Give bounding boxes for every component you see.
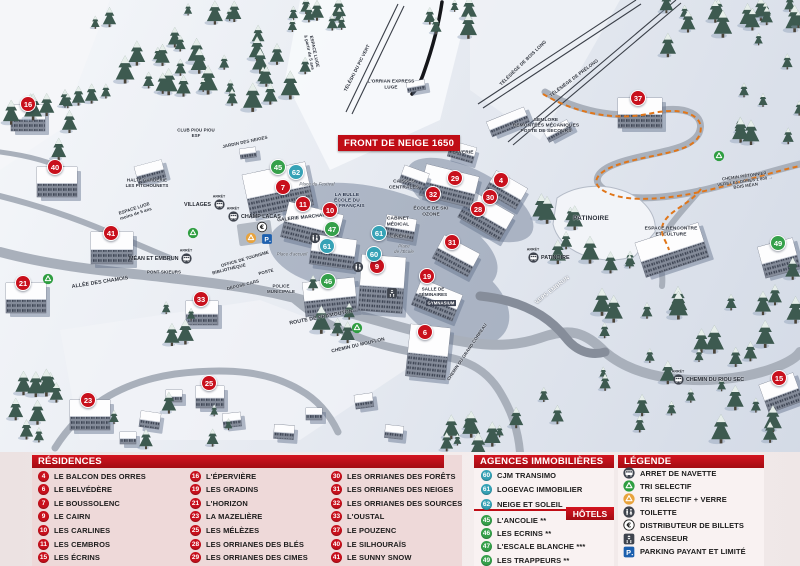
legend-item-label: NEIGE ET SOLEIL <box>497 500 563 509</box>
map-overlay: FRONT DE NEIGE 1650 16404121332325711109… <box>0 0 800 455</box>
recycle-green-icon <box>43 274 54 285</box>
legend-item: ARRET DE NAVETTE <box>623 467 716 479</box>
legend-item-label: L'ÉPERVIÈRE <box>206 472 256 481</box>
legend-item: 28LES ORRIANES DES BLÉS <box>190 538 304 550</box>
legend-item: 46LES ECRINS ** <box>481 527 551 539</box>
recycle-green-icon <box>623 480 635 492</box>
map-marker-4: 4 <box>493 172 509 188</box>
legend-item-label: LE BOUSSOLENC <box>54 499 120 508</box>
legend-item: 41LE SUNNY SNOW <box>331 552 412 564</box>
map-label: ESPACE RENCONTRE ET CULTURE <box>645 225 698 236</box>
legend-item-label: L'ANCOLIE ** <box>497 516 546 525</box>
legend-item: 11LES CEMBROS <box>38 538 110 550</box>
legend-item: 32LES ORRIANES DES SOURCES <box>331 497 462 509</box>
map-marker-45: 45 <box>270 159 286 175</box>
legend-item-label: LE BELVÉDÈRE <box>54 485 112 494</box>
map-label: PATINOIRE <box>573 214 609 222</box>
legend-item-label: LES ORRIANES DES CIMES <box>206 553 308 562</box>
shuttle-bus-icon <box>214 199 225 210</box>
agences-header: AGENCES IMMOBILIÈRES <box>474 455 614 468</box>
svg-text:P: P <box>626 548 631 557</box>
map-label: TÉLÉSIÈGE DE PRÉLONG <box>549 58 600 98</box>
toilets-icon <box>353 262 364 273</box>
legend-item-marker: 46 <box>481 528 492 539</box>
map-label: CHEMIN PIÉTONNIER VERS LES ORRES 1 800 →… <box>716 170 774 192</box>
map-label: CHEMIN DU GRAND CORREAU <box>446 322 488 381</box>
map-label: POLICE MUNICIPALE <box>267 284 295 294</box>
legend-item: 25LES MÉLÈZES <box>190 524 259 536</box>
map-label: Place de l'École <box>394 244 414 254</box>
legend-item-marker: 15 <box>38 552 49 563</box>
legend-item-label: LE CAIRN <box>54 512 90 521</box>
shuttle-bus-icon <box>528 252 539 263</box>
legend-item-label: LE BALCON DES ORRES <box>54 472 146 481</box>
map-marker-29: 29 <box>447 170 463 186</box>
elevator-icon <box>387 288 398 299</box>
legend-item: 33L'OUSTAL <box>331 511 384 523</box>
legend-item: TRI SELECTIF + VERRE <box>623 493 727 505</box>
legend-item-marker: 23 <box>190 511 201 522</box>
legend-item: 16L'ÉPERVIÈRE <box>190 470 256 482</box>
legend-item-marker: 31 <box>331 484 342 495</box>
map-marker-6: 6 <box>417 324 433 340</box>
legend-strip: RÉSIDENCES 4LE BALCON DES ORRES6LE BELVÉ… <box>0 452 800 566</box>
atm-euro-icon: € <box>623 519 635 531</box>
legende-panel: LÉGENDE ARRET DE NAVETTETRI SELECTIFTRI … <box>618 455 764 566</box>
legend-item-label: L'OUSTAL <box>347 512 384 521</box>
bus-stop-label: CHAMP LACAS <box>241 213 281 219</box>
legend-item-marker: 29 <box>190 552 201 563</box>
map-label: ROUTE DE PRAMOUTON <box>289 308 353 326</box>
legend-item: 60CJM TRANSIMO <box>481 469 556 481</box>
legend-item: 15LES ÉCRINS <box>38 552 100 564</box>
legend-item-label: LES ORRIANES DES NEIGES <box>347 485 454 494</box>
legend-item-label: TRI SELECTIF + VERRE <box>640 495 727 504</box>
legend-item: PPARKING PAYANT ET LIMITÉ <box>623 546 746 558</box>
map-marker-23: 23 <box>80 392 96 408</box>
legend-item-marker: 9 <box>38 511 49 522</box>
agences-panel: AGENCES IMMOBILIÈRES HÔTELS 60CJM TRANSI… <box>474 455 614 566</box>
legend-item-marker: 49 <box>481 555 492 566</box>
legend-item: TRI SELECTIF <box>623 480 692 492</box>
legend-item-marker: 4 <box>38 471 49 482</box>
legend-item-label: LES TRAPPEURS ** <box>497 556 569 565</box>
legend-item: 62NEIGE ET SOLEIL <box>481 498 563 510</box>
legend-item-label: LE SUNNY SNOW <box>347 553 412 562</box>
map-label: TÉLÉSIÈGE DE BOIS LONG <box>499 39 548 87</box>
legend-item: 45L'ANCOLIE ** <box>481 514 546 526</box>
map-marker-61: 61 <box>371 225 387 241</box>
legend-item-label: LES ORRIANES DES FORÊTS <box>347 472 456 481</box>
legend-item-label: TRI SELECTIF <box>640 482 692 491</box>
map-marker-33: 33 <box>193 291 209 307</box>
elevator-icon <box>623 533 635 545</box>
map-label: CABINET MÉDICAL <box>387 215 410 226</box>
map-label: L'ORRIAN EXPRESS LUGE <box>368 79 415 90</box>
map-label: Place du Festival <box>299 181 334 186</box>
legend-item-label: DISTRIBUTEUR DE BILLETS <box>640 521 744 530</box>
legend-item: 49LES TRAPPEURS ** <box>481 554 569 566</box>
legend-item-label: LES ORRIANES DES SOURCES <box>347 499 462 508</box>
map-marker-60: 60 <box>366 246 382 262</box>
map-marker-47: 47 <box>324 221 340 237</box>
legend-item-label: L'ESCALE BLANCHE *** <box>497 542 585 551</box>
map-marker-41: 41 <box>103 225 119 241</box>
map-marker-21: 21 <box>15 275 31 291</box>
map-label: CLUB PIOU PIOU ESF <box>177 128 215 138</box>
bus-stop-label: CHEMIN DU RIOU SEC <box>686 376 744 382</box>
map-marker-49: 49 <box>770 235 786 251</box>
map-label: ESPACE LUGE moins de 5 ans <box>118 201 153 221</box>
toilets-icon <box>623 506 635 518</box>
legend-item: 10LES CARLINES <box>38 524 110 536</box>
map-marker-32: 32 <box>425 186 441 202</box>
residences-header: RÉSIDENCES <box>32 455 444 468</box>
legend-item-label: CJM TRANSIMO <box>497 471 556 480</box>
recycle-yellow-icon <box>246 233 257 244</box>
map-marker-37: 37 <box>630 90 646 106</box>
legend-item-marker: 10 <box>38 525 49 536</box>
legend-item-label: LE POUZENC <box>347 526 396 535</box>
map-marker-62: 62 <box>288 164 304 180</box>
hotels-header: HÔTELS <box>566 507 614 520</box>
shuttle-bus-icon <box>228 211 239 222</box>
legend-item: €DISTRIBUTEUR DE BILLETS <box>623 519 744 531</box>
legend-item: 19LES GRADINS <box>190 484 258 496</box>
legend-item-label: LES ORRIANES DES BLÉS <box>206 540 304 549</box>
resort-map-page: FRONT DE NEIGE 1650 16404121332325711109… <box>0 0 800 566</box>
legend-item-marker: 60 <box>481 470 492 481</box>
map-label: ESPACE LUGE à partir de 5 ans <box>303 34 321 71</box>
legend-item: 30LES ORRIANES DES FORÊTS <box>331 470 456 482</box>
legend-item-marker: 19 <box>190 484 201 495</box>
map-marker-40: 40 <box>47 159 63 175</box>
recycle-green-icon <box>188 228 199 239</box>
svg-text:€: € <box>626 522 632 530</box>
svg-text:€: € <box>259 224 264 231</box>
legend-item-marker: 16 <box>190 471 201 482</box>
map-marker-7: 7 <box>275 179 291 195</box>
map-label: CAISSES CENTRALES <box>389 178 419 189</box>
map-label: PONT SKIEURS <box>147 269 181 274</box>
legend-item-marker: 7 <box>38 498 49 509</box>
map-label: CHEMIN DU MOUFLON <box>331 336 385 354</box>
legend-item-marker: 30 <box>331 471 342 482</box>
legend-item-marker: 62 <box>481 499 492 510</box>
bus-stop-label: MÉAN ET EMBRUN <box>129 255 179 261</box>
legend-item: 6LE BELVÉDÈRE <box>38 484 112 496</box>
map-marker-15: 15 <box>771 370 787 386</box>
legend-item: 31LES ORRIANES DES NEIGES <box>331 484 454 496</box>
map-label: ÉCOLE DE SKI OZONE <box>413 205 448 216</box>
map-marker-11: 11 <box>295 196 311 212</box>
legend-item-marker: 21 <box>190 498 201 509</box>
legend-item-label: LES CARLINES <box>54 526 110 535</box>
bus-stop-label: VILLAGES <box>184 201 211 207</box>
legend-item: 9LE CAIRN <box>38 511 90 523</box>
legend-item-marker: 32 <box>331 498 342 509</box>
map-marker-46: 46 <box>320 273 336 289</box>
residences-panel: RÉSIDENCES 4LE BALCON DES ORRES6LE BELVÉ… <box>32 455 462 566</box>
map-label: GYMNASIUM <box>426 300 456 306</box>
map-marker-19: 19 <box>419 268 435 284</box>
map-label: HALTE GARDERIE LES PITCHOUNETS <box>126 178 169 188</box>
legend-item-label: TOILETTE <box>640 508 677 517</box>
map-label: DÉPOSE CARS <box>226 278 259 291</box>
map-label: JARDIN DES NEIGES <box>222 135 268 150</box>
legend-item-label: ASCENSEUR <box>640 534 688 543</box>
legend-item: 23LA MAZELIÈRE <box>190 511 262 523</box>
legend-item: 47L'ESCALE BLANCHE *** <box>481 541 585 553</box>
legend-item-marker: 61 <box>481 484 492 495</box>
shuttle-bus-icon <box>623 467 635 479</box>
map-label: Place d'accueil <box>277 251 308 256</box>
shuttle-bus-icon <box>181 253 192 264</box>
shuttle-bus-icon <box>673 374 684 385</box>
legend-item-marker: 33 <box>331 511 342 522</box>
atm-euro-icon: € <box>257 222 268 233</box>
legend-item: 37LE POUZENC <box>331 524 396 536</box>
legend-item-marker: 6 <box>38 484 49 495</box>
map-marker-10: 10 <box>322 202 338 218</box>
parking-icon: P <box>262 234 273 245</box>
map-label: SEMLORE REMONTÉES MÉCANIQUES POSTE DE SE… <box>513 117 579 134</box>
legend-item-marker: 41 <box>331 552 342 563</box>
map-label: SALLE DE SÉMINAIRES <box>419 287 447 297</box>
legend-item-label: LES ÉCRINS <box>54 553 100 562</box>
legend-item-marker: 45 <box>481 515 492 526</box>
legend-item-marker: 37 <box>331 525 342 536</box>
legend-item: 61LOGEVAC IMMOBILIER <box>481 484 582 496</box>
legend-item-marker: 11 <box>38 539 49 550</box>
legend-item-label: LA MAZELIÈRE <box>206 512 262 521</box>
legend-item-marker: 47 <box>481 541 492 552</box>
front-de-neige-banner: FRONT DE NEIGE 1650 <box>338 135 460 151</box>
legend-item-label: LES MÉLÈZES <box>206 526 259 535</box>
legend-item-label: LES CEMBROS <box>54 540 110 549</box>
recycle-yellow-icon <box>623 493 635 505</box>
map-marker-25: 25 <box>201 375 217 391</box>
legend-item: 21L'HORIZON <box>190 497 248 509</box>
legend-item-label: LOGEVAC IMMOBILIER <box>497 485 582 494</box>
legend-item-label: ARRET DE NAVETTE <box>640 469 716 478</box>
recycle-green-icon <box>352 323 363 334</box>
legend-item: ASCENSEUR <box>623 533 688 545</box>
legend-item-label: L'HORIZON <box>206 499 248 508</box>
legend-item-label: LES GRADINS <box>206 485 258 494</box>
map-label: CINÉMA <box>390 233 410 239</box>
svg-text:P: P <box>264 237 269 244</box>
map-marker-16: 16 <box>20 96 36 112</box>
legend-item-label: LES ECRINS ** <box>497 529 551 538</box>
map-marker-31: 31 <box>444 234 460 250</box>
legend-item: 4LE BALCON DES ORRES <box>38 470 146 482</box>
map-label: ALLÉE DES CHAMOIS <box>71 275 128 290</box>
legend-item: 40LE SILHOURAÏS <box>331 538 406 550</box>
legend-item: 29LES ORRIANES DES CIMES <box>190 552 308 564</box>
legend-item-marker: 40 <box>331 539 342 550</box>
legend-item-marker: 28 <box>190 539 201 550</box>
map-marker-61: 61 <box>319 238 335 254</box>
map-marker-28: 28 <box>470 201 486 217</box>
map-label: POSTE <box>258 268 274 277</box>
parking-icon: P <box>623 546 635 558</box>
legend-item-marker: 25 <box>190 525 201 536</box>
legend-item: 7LE BOUSSOLENC <box>38 497 120 509</box>
legend-item: TOILETTE <box>623 506 677 518</box>
legend-item-label: LE SILHOURAÏS <box>347 540 406 549</box>
legend-item-label: PARKING PAYANT ET LIMITÉ <box>640 547 746 556</box>
map-marker-30: 30 <box>482 189 498 205</box>
recycle-green-icon <box>714 151 725 162</box>
bus-stop-label: PATINOIRE <box>541 254 570 260</box>
